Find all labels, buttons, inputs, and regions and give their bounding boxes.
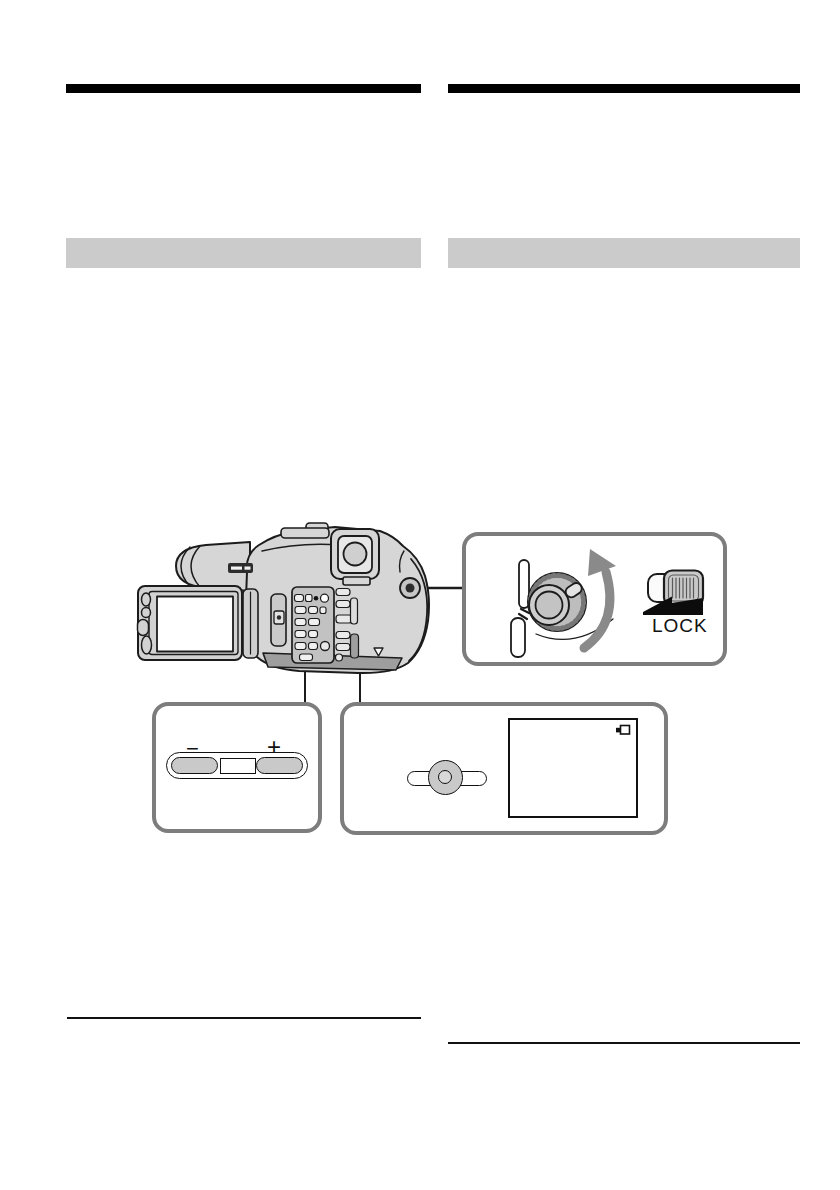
- display-screen: [508, 718, 638, 818]
- viewfinder: [331, 529, 379, 585]
- power-dial-large: [528, 573, 586, 631]
- jog-dial-center-button: [438, 770, 452, 784]
- eyecup: [344, 543, 367, 566]
- curved-rotate-arrow-icon: [584, 549, 616, 648]
- power-dial-turn-illustration: [466, 536, 723, 662]
- plus-button: [256, 757, 303, 774]
- lcd-panel: [138, 586, 243, 660]
- manual-page: LOCK − +: [0, 0, 840, 1190]
- power-dial: [400, 578, 420, 598]
- rocker-center: [220, 758, 256, 774]
- camcorder-illustration: [125, 515, 470, 710]
- left-footnote-rule: [67, 1017, 421, 1019]
- button-panel: [292, 587, 334, 663]
- model-badge: [228, 563, 253, 573]
- left-column-title-bar: [66, 84, 421, 93]
- left-section-header-bar: [66, 238, 421, 268]
- volume-buttons-callout-box: − +: [152, 702, 322, 833]
- minus-button: [171, 757, 218, 774]
- right-column-title-bar: [448, 84, 800, 93]
- power-dial-callout-box: LOCK: [462, 532, 727, 666]
- jog-dial: [428, 760, 463, 795]
- lcd-screen: [157, 597, 233, 652]
- lock-label: LOCK: [652, 616, 708, 635]
- microphone-housing: [281, 528, 329, 538]
- battery-icon: [615, 724, 631, 736]
- right-footnote-rule: [448, 1042, 800, 1044]
- jog-dial-callout-box: [340, 702, 668, 835]
- right-section-header-bar: [448, 238, 800, 268]
